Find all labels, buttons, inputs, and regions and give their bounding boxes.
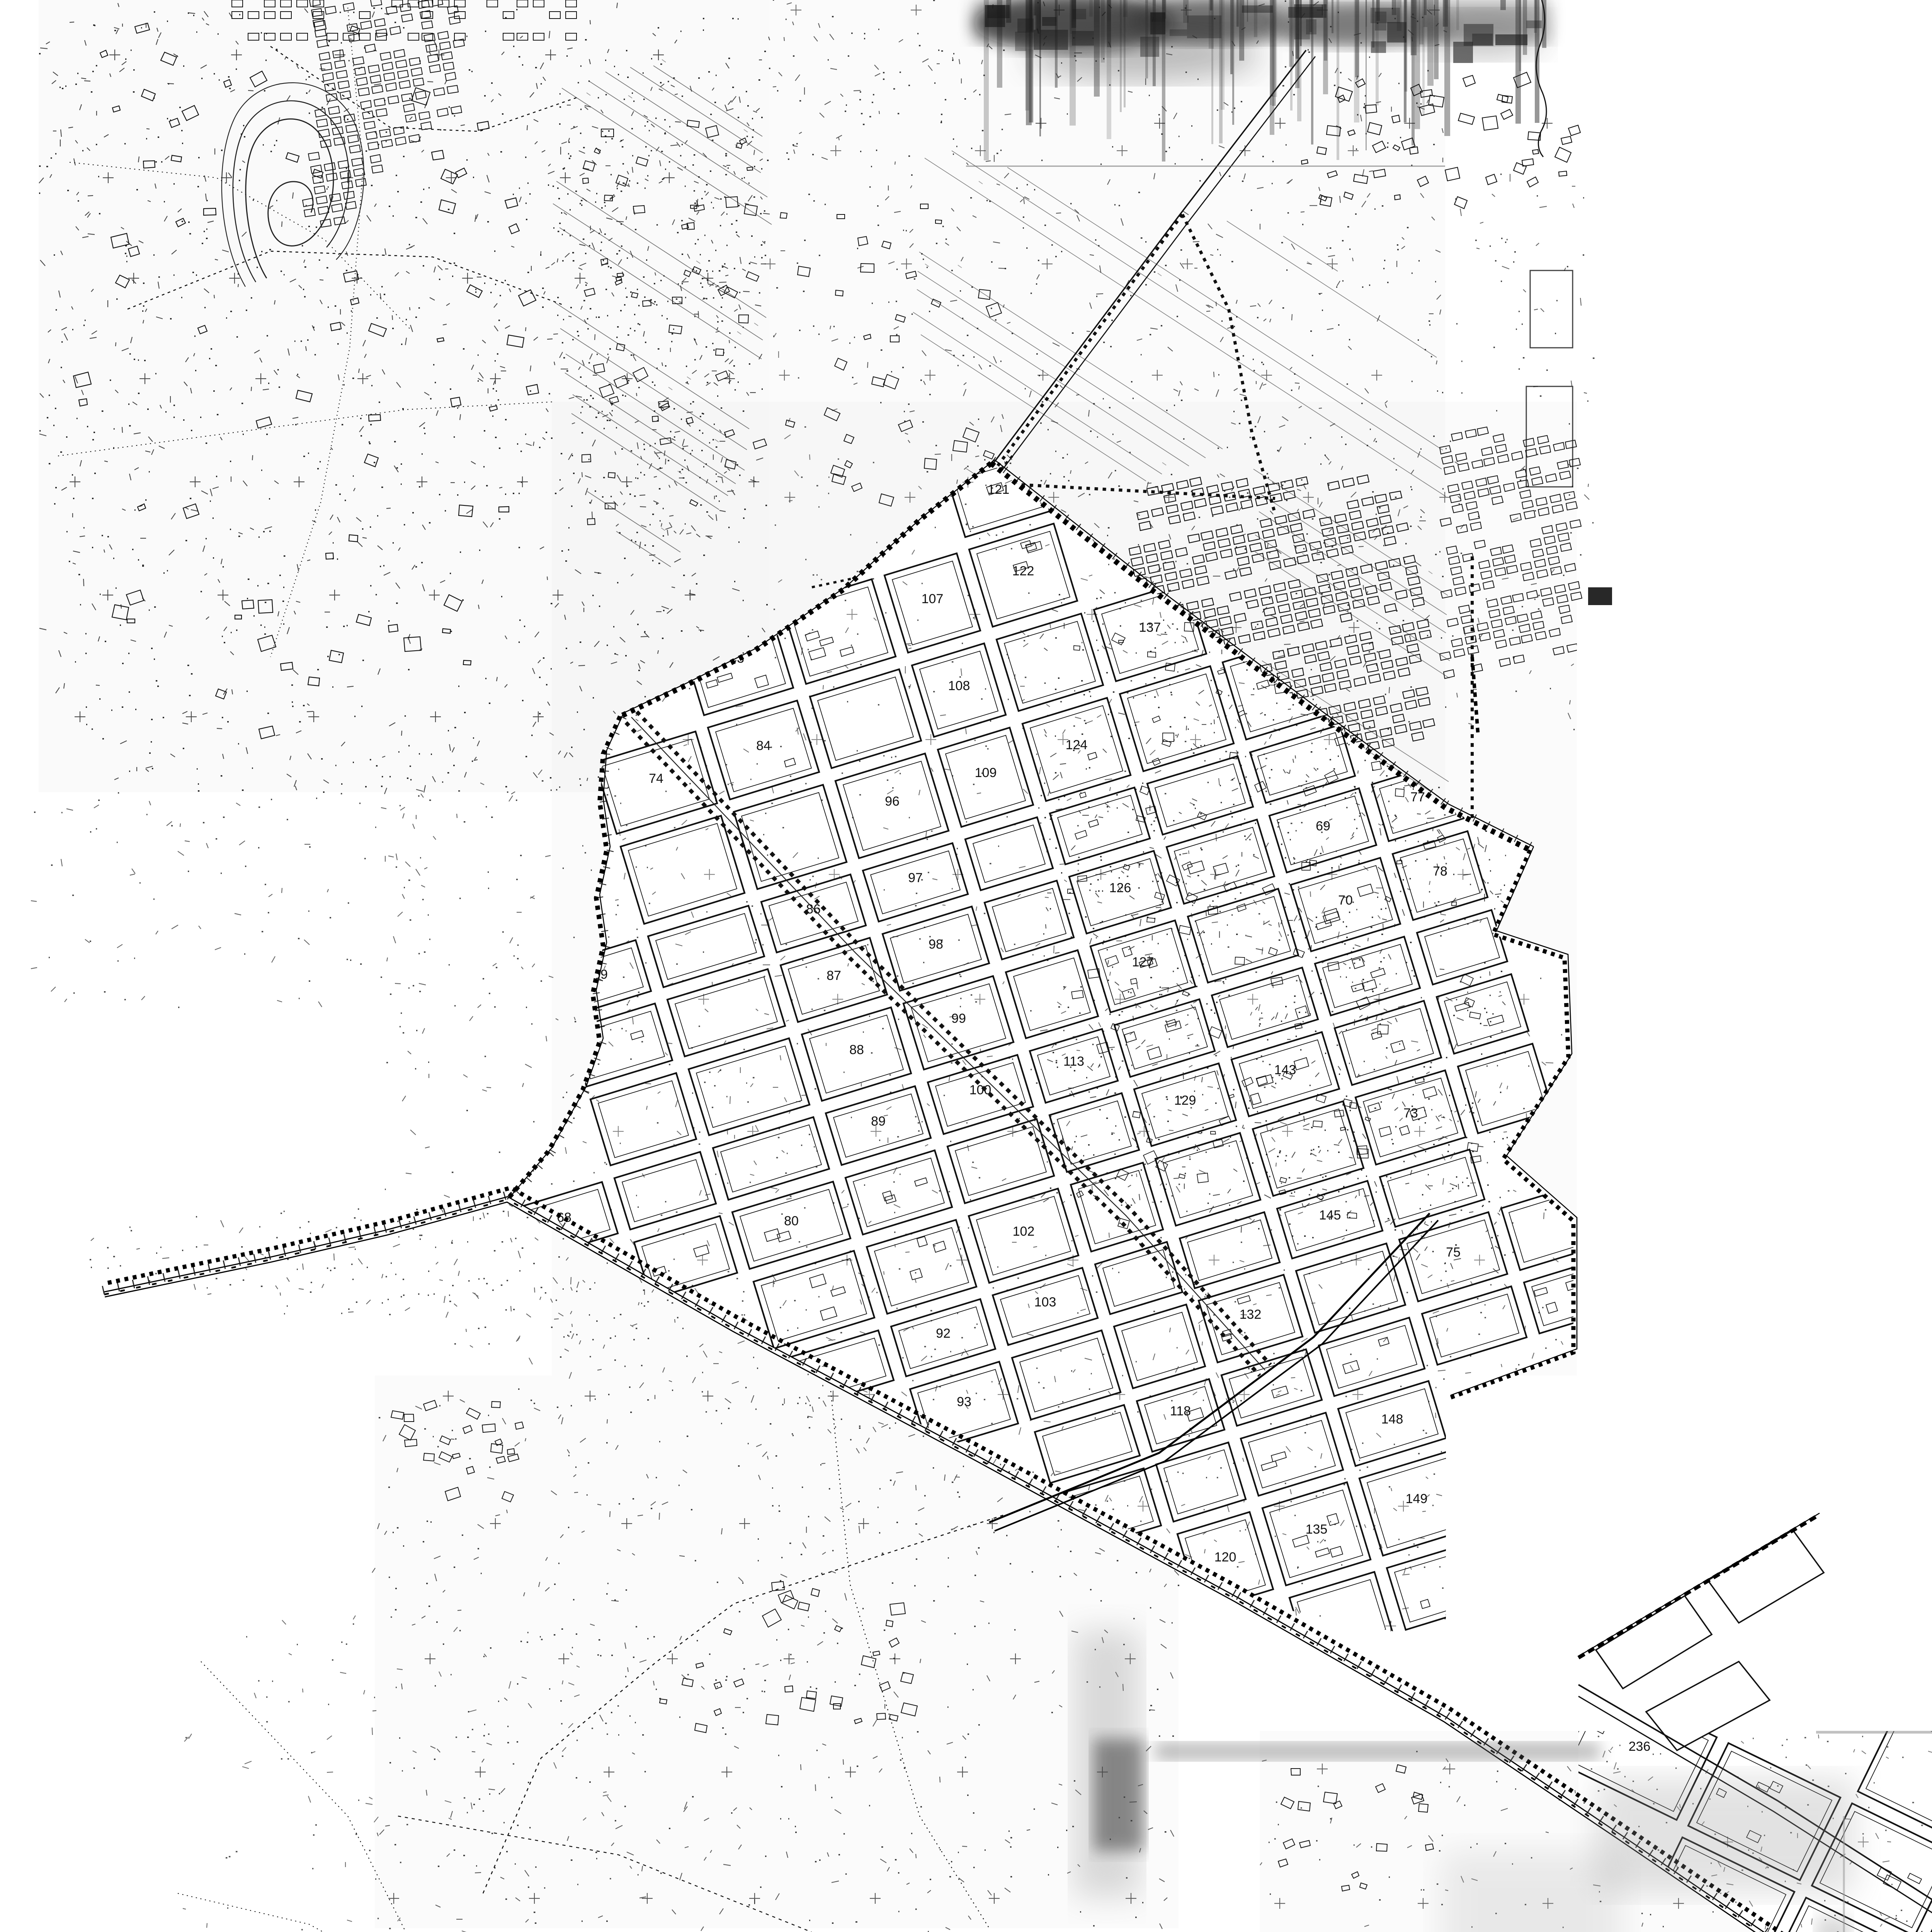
svg-text:122: 122	[1012, 564, 1034, 578]
svg-text:143: 143	[1274, 1063, 1296, 1077]
svg-text:69: 69	[1316, 819, 1330, 833]
svg-text:124: 124	[1066, 738, 1088, 752]
svg-text:127: 127	[1132, 955, 1154, 969]
svg-text:107: 107	[922, 592, 944, 606]
svg-text:75: 75	[1446, 1245, 1461, 1260]
svg-text:135: 135	[1306, 1522, 1328, 1537]
svg-text:77: 77	[1410, 790, 1425, 804]
svg-text:78: 78	[1433, 864, 1447, 879]
svg-text:113: 113	[1063, 1054, 1084, 1069]
svg-text:93: 93	[957, 1395, 971, 1409]
svg-text:73: 73	[1403, 1106, 1418, 1121]
svg-text:70: 70	[1338, 893, 1353, 908]
svg-text:97: 97	[908, 871, 923, 885]
svg-text:145: 145	[1319, 1208, 1341, 1223]
svg-text:236: 236	[1629, 1739, 1651, 1754]
svg-text:149: 149	[1406, 1492, 1428, 1506]
svg-text:148: 148	[1381, 1412, 1403, 1427]
svg-text:99: 99	[951, 1011, 966, 1026]
svg-text:96: 96	[885, 794, 900, 809]
svg-text:126: 126	[1109, 881, 1131, 895]
svg-text:118: 118	[1170, 1404, 1191, 1418]
svg-text:121: 121	[988, 482, 1010, 497]
svg-text:103: 103	[1034, 1295, 1056, 1310]
svg-text:80: 80	[784, 1214, 799, 1228]
svg-text:100: 100	[969, 1083, 992, 1097]
svg-text:108: 108	[948, 679, 970, 693]
svg-text:137: 137	[1139, 620, 1161, 635]
svg-text:89: 89	[871, 1114, 886, 1129]
svg-text:74: 74	[649, 771, 663, 786]
svg-text:120: 120	[1214, 1550, 1236, 1565]
svg-text:88: 88	[849, 1043, 864, 1057]
svg-text:102: 102	[1013, 1224, 1035, 1239]
svg-text:98: 98	[929, 937, 943, 952]
svg-text:87: 87	[827, 968, 841, 983]
svg-text:92: 92	[936, 1326, 951, 1341]
svg-text:129: 129	[1174, 1093, 1196, 1108]
svg-text:84: 84	[756, 738, 771, 753]
svg-text:109: 109	[975, 765, 997, 780]
